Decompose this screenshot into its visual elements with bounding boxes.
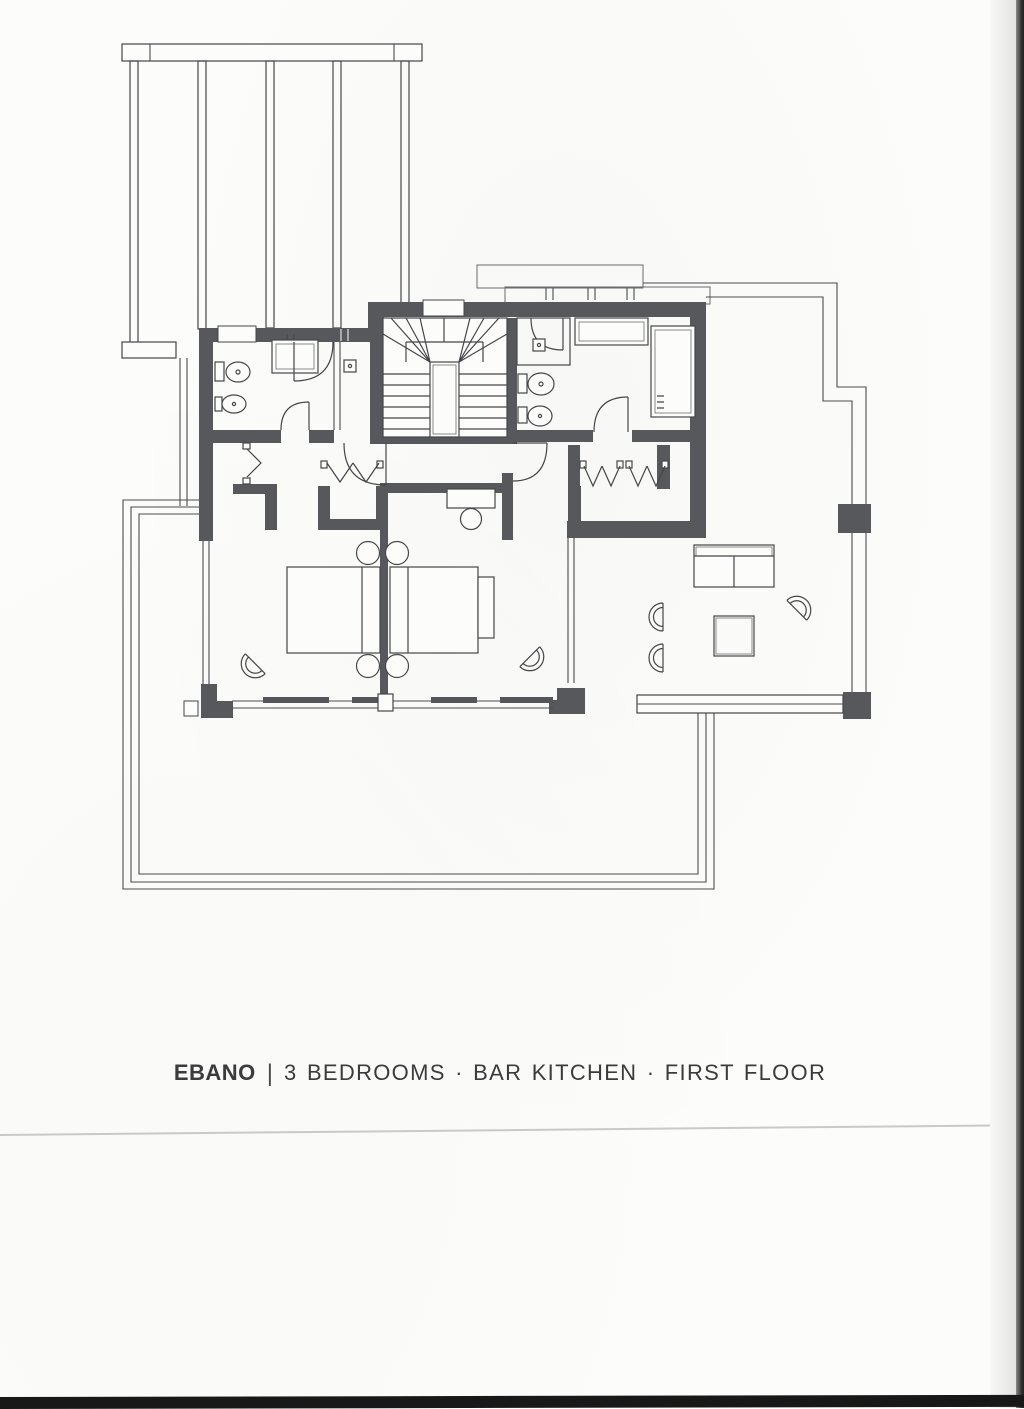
window-stairwell: [423, 300, 464, 316]
stool: [461, 509, 482, 530]
caption: EBANO | 3 BEDROOMS · BAR KITCHEN · FIRST…: [0, 1059, 1000, 1087]
pergola-posts: [130, 61, 409, 343]
floor-plan-drawing: [0, 0, 1024, 1408]
door-dressing: [513, 443, 547, 481]
bathroom-1: [215, 334, 356, 430]
pergola-bottom-beam: [122, 342, 176, 358]
armchair-living-2: [649, 644, 663, 672]
pergola-top-beam: [122, 44, 422, 61]
bathroom-2: [517, 318, 695, 432]
sofa: [694, 545, 774, 587]
corridor-doors: [344, 443, 547, 485]
wardrobe: [651, 326, 695, 417]
door-bath2: [594, 397, 628, 432]
caption-description: 3 BEDROOMS · BAR KITCHEN · FIRST FLOOR: [284, 1060, 826, 1086]
staircase: [383, 318, 507, 437]
wall-top-right: [370, 302, 706, 317]
switch-box: [344, 360, 356, 372]
scan-bottom-band: [0, 1395, 1024, 1409]
bed-1: [287, 567, 380, 653]
stair-core: [430, 362, 459, 437]
column-bedroom2-living: [557, 688, 585, 714]
armchair-bedroom1: [235, 654, 265, 684]
bath1-partition: [334, 342, 340, 430]
coffee-table: [714, 616, 754, 656]
closet-dressing: [580, 461, 668, 486]
window-tick-marks: [546, 288, 634, 300]
bed-2: [390, 567, 478, 653]
roof-overhang-outline: [477, 265, 710, 304]
dresser: [447, 489, 495, 508]
armchair-living-1: [649, 603, 663, 631]
door-bath1-bottom: [281, 402, 309, 430]
sink-counter-1: [272, 340, 318, 373]
bedroom1-side-window: [203, 541, 209, 684]
pergola-drop-line: [180, 358, 187, 506]
toilet-2: [518, 373, 554, 395]
scan-edge-shadow: [990, 0, 1016, 1408]
bedroom2-living-glass: [568, 538, 574, 683]
caption-separator: |: [267, 1060, 273, 1088]
closet-bedroom1: [243, 443, 261, 484]
window-mullion-post: [378, 694, 393, 711]
closets: [243, 443, 668, 486]
wall-stair-left: [370, 318, 383, 438]
column-bedroom1: [201, 684, 217, 718]
bidet-2: [518, 406, 552, 426]
window-walls: [203, 342, 843, 713]
living-furniture: [649, 545, 817, 672]
scan-edge-dark-strip: [1016, 0, 1024, 1408]
scanned-page: EBANO | 3 BEDROOMS · BAR KITCHEN · FIRST…: [0, 0, 1024, 1408]
bidet-1: [215, 395, 246, 413]
toilet-1: [215, 362, 250, 382]
column-terrace-mid: [838, 504, 871, 533]
armchair-living-3: [787, 590, 817, 620]
armchair-bedroom2: [520, 647, 550, 677]
wall-living-top: [567, 521, 706, 538]
bed-bench: [478, 577, 494, 638]
window-bath1: [218, 326, 256, 342]
project-name: EBANO: [174, 1060, 256, 1086]
column-terrace-corner: [843, 692, 871, 719]
